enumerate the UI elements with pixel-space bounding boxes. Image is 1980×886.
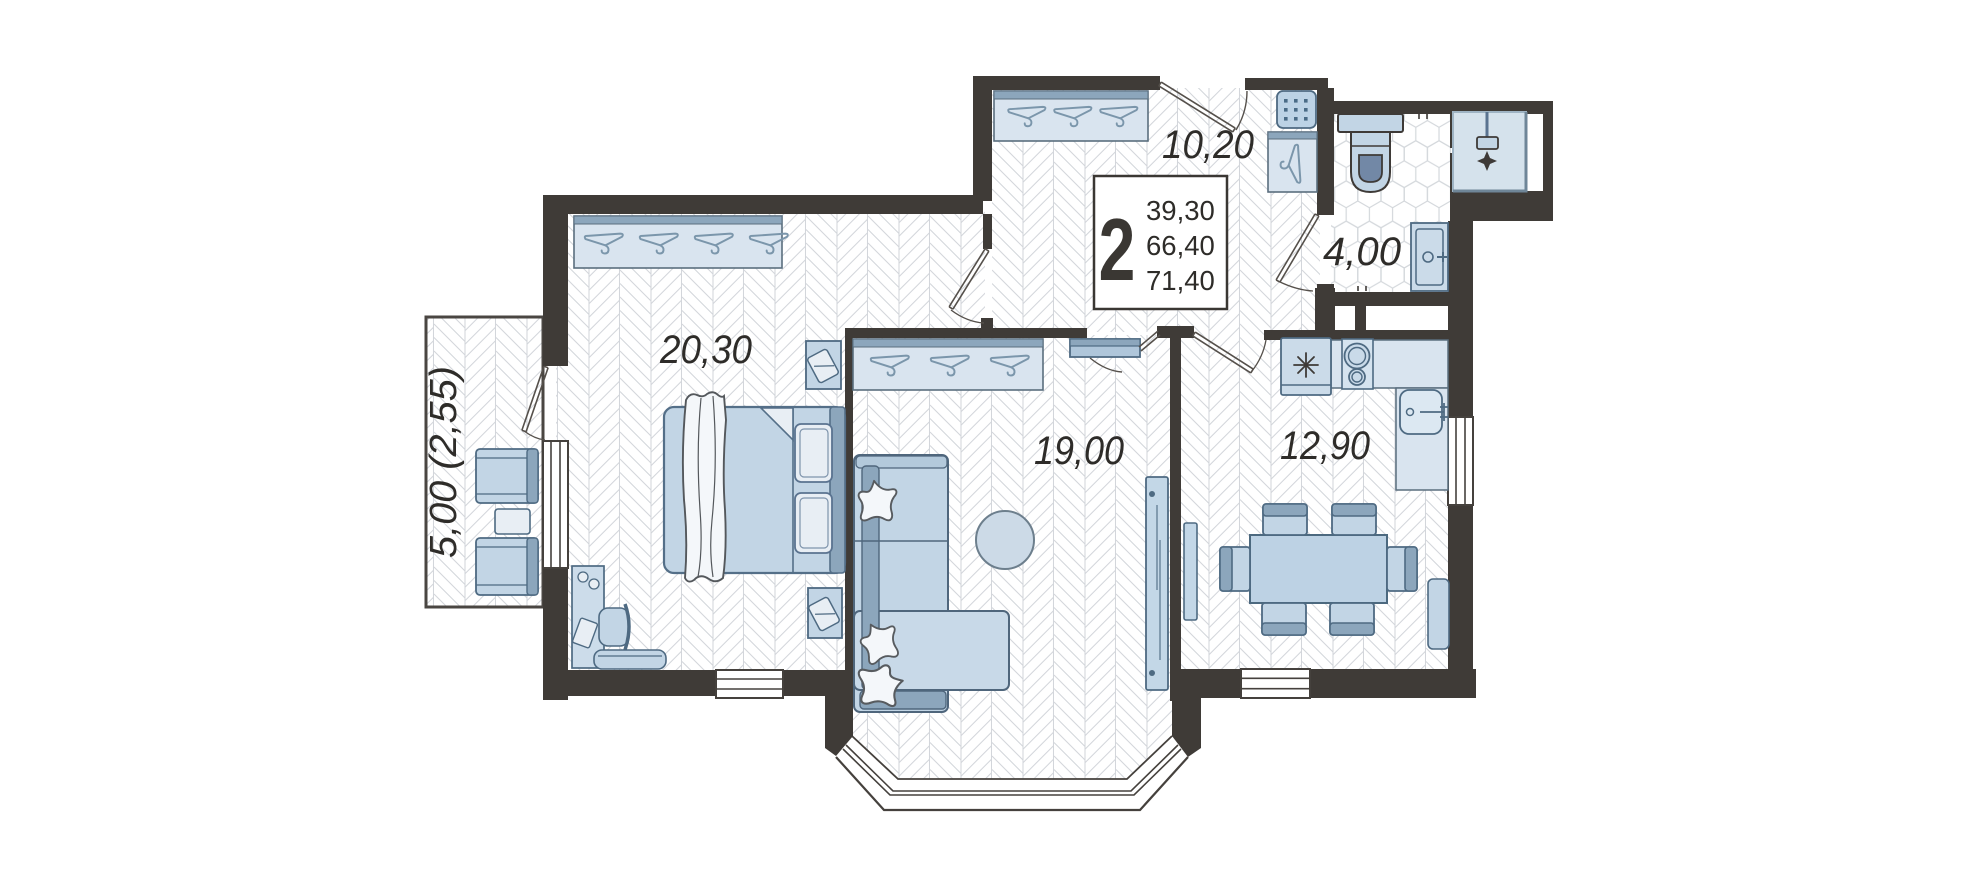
svg-text:10,20: 10,20 — [1162, 123, 1254, 167]
svg-text:39,30: 39,30 — [1146, 195, 1215, 226]
svg-text:71,40: 71,40 — [1146, 265, 1215, 296]
svg-text:5,00 (2,55): 5,00 (2,55) — [423, 366, 465, 558]
svg-text:20,30: 20,30 — [659, 328, 752, 372]
svg-text:19,00: 19,00 — [1034, 429, 1124, 473]
svg-text:12,90: 12,90 — [1280, 424, 1370, 468]
svg-text:66,40: 66,40 — [1146, 230, 1215, 261]
svg-text:2: 2 — [1099, 202, 1136, 299]
svg-text:4,00: 4,00 — [1323, 230, 1401, 274]
